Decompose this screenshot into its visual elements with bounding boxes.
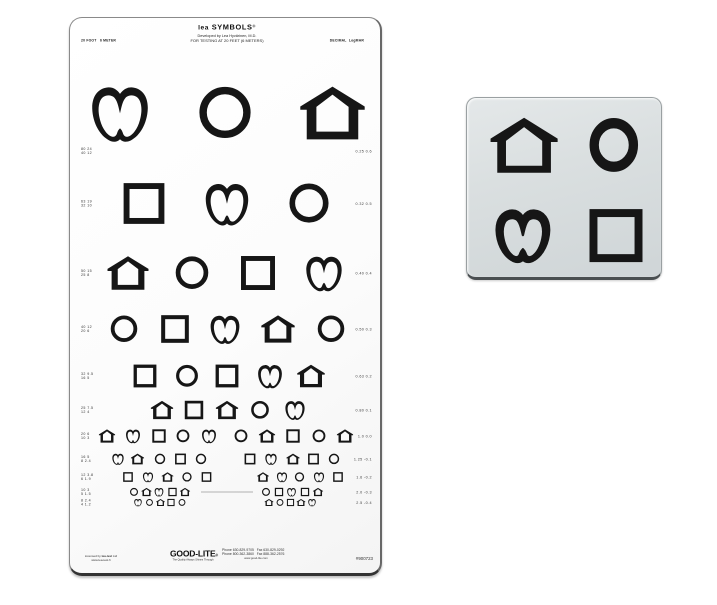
svg-text:25 8: 25 8 [81,273,90,277]
svg-text:www.good-lite.com: www.good-lite.com [244,556,268,560]
svg-text:0.40 0.4: 0.40 0.4 [355,272,372,276]
svg-text:8 2.4: 8 2.4 [81,459,91,463]
svg-text:2.5 -0.4: 2.5 -0.4 [356,501,372,505]
svg-text:0.63 0.2: 0.63 0.2 [355,375,372,379]
svg-text:1.25 -0.1: 1.25 -0.1 [354,458,372,462]
svg-text:40 12: 40 12 [81,151,92,155]
svg-text:5 1.5: 5 1.5 [81,492,91,496]
svg-text:1.6 -0.2: 1.6 -0.2 [356,476,372,480]
svg-text:32 10: 32 10 [81,204,92,208]
svg-text:16 5: 16 5 [81,376,90,380]
svg-text:0.50 0.3: 0.50 0.3 [355,328,372,332]
svg-text:DECIMAL LogMAR: DECIMAL LogMAR [330,39,365,43]
svg-text:#900723: #900723 [356,556,374,561]
svg-text:The Quality Always Shines Thro: The Quality Always Shines Through [172,558,214,562]
svg-text:10 3: 10 3 [81,436,90,440]
svg-text:2.0 -0.3: 2.0 -0.3 [356,491,372,495]
svg-text:1.0 0.0: 1.0 0.0 [358,435,372,439]
svg-text:GOOD-LITE®: GOOD-LITE® [170,550,219,559]
svg-text:FOR TESTING AT 20 FEET (6 METE: FOR TESTING AT 20 FEET (6 METERS) [190,38,264,43]
svg-text:4 1.2: 4 1.2 [81,503,91,507]
svg-text:12 4: 12 4 [81,410,90,414]
svg-text:6 1.9: 6 1.9 [81,477,91,481]
svg-text:lea SYMBOLS®: lea SYMBOLS® [198,23,256,32]
svg-text:www.lea-test.fi: www.lea-test.fi [91,558,111,562]
svg-text:0.25 0.6: 0.25 0.6 [355,150,372,154]
svg-text:20 FOOT 6 METER: 20 FOOT 6 METER [81,39,116,43]
svg-text:20 6: 20 6 [81,329,90,333]
svg-text:0.80 0.1: 0.80 0.1 [355,409,372,413]
svg-text:0.32 0.5: 0.32 0.5 [355,202,372,206]
